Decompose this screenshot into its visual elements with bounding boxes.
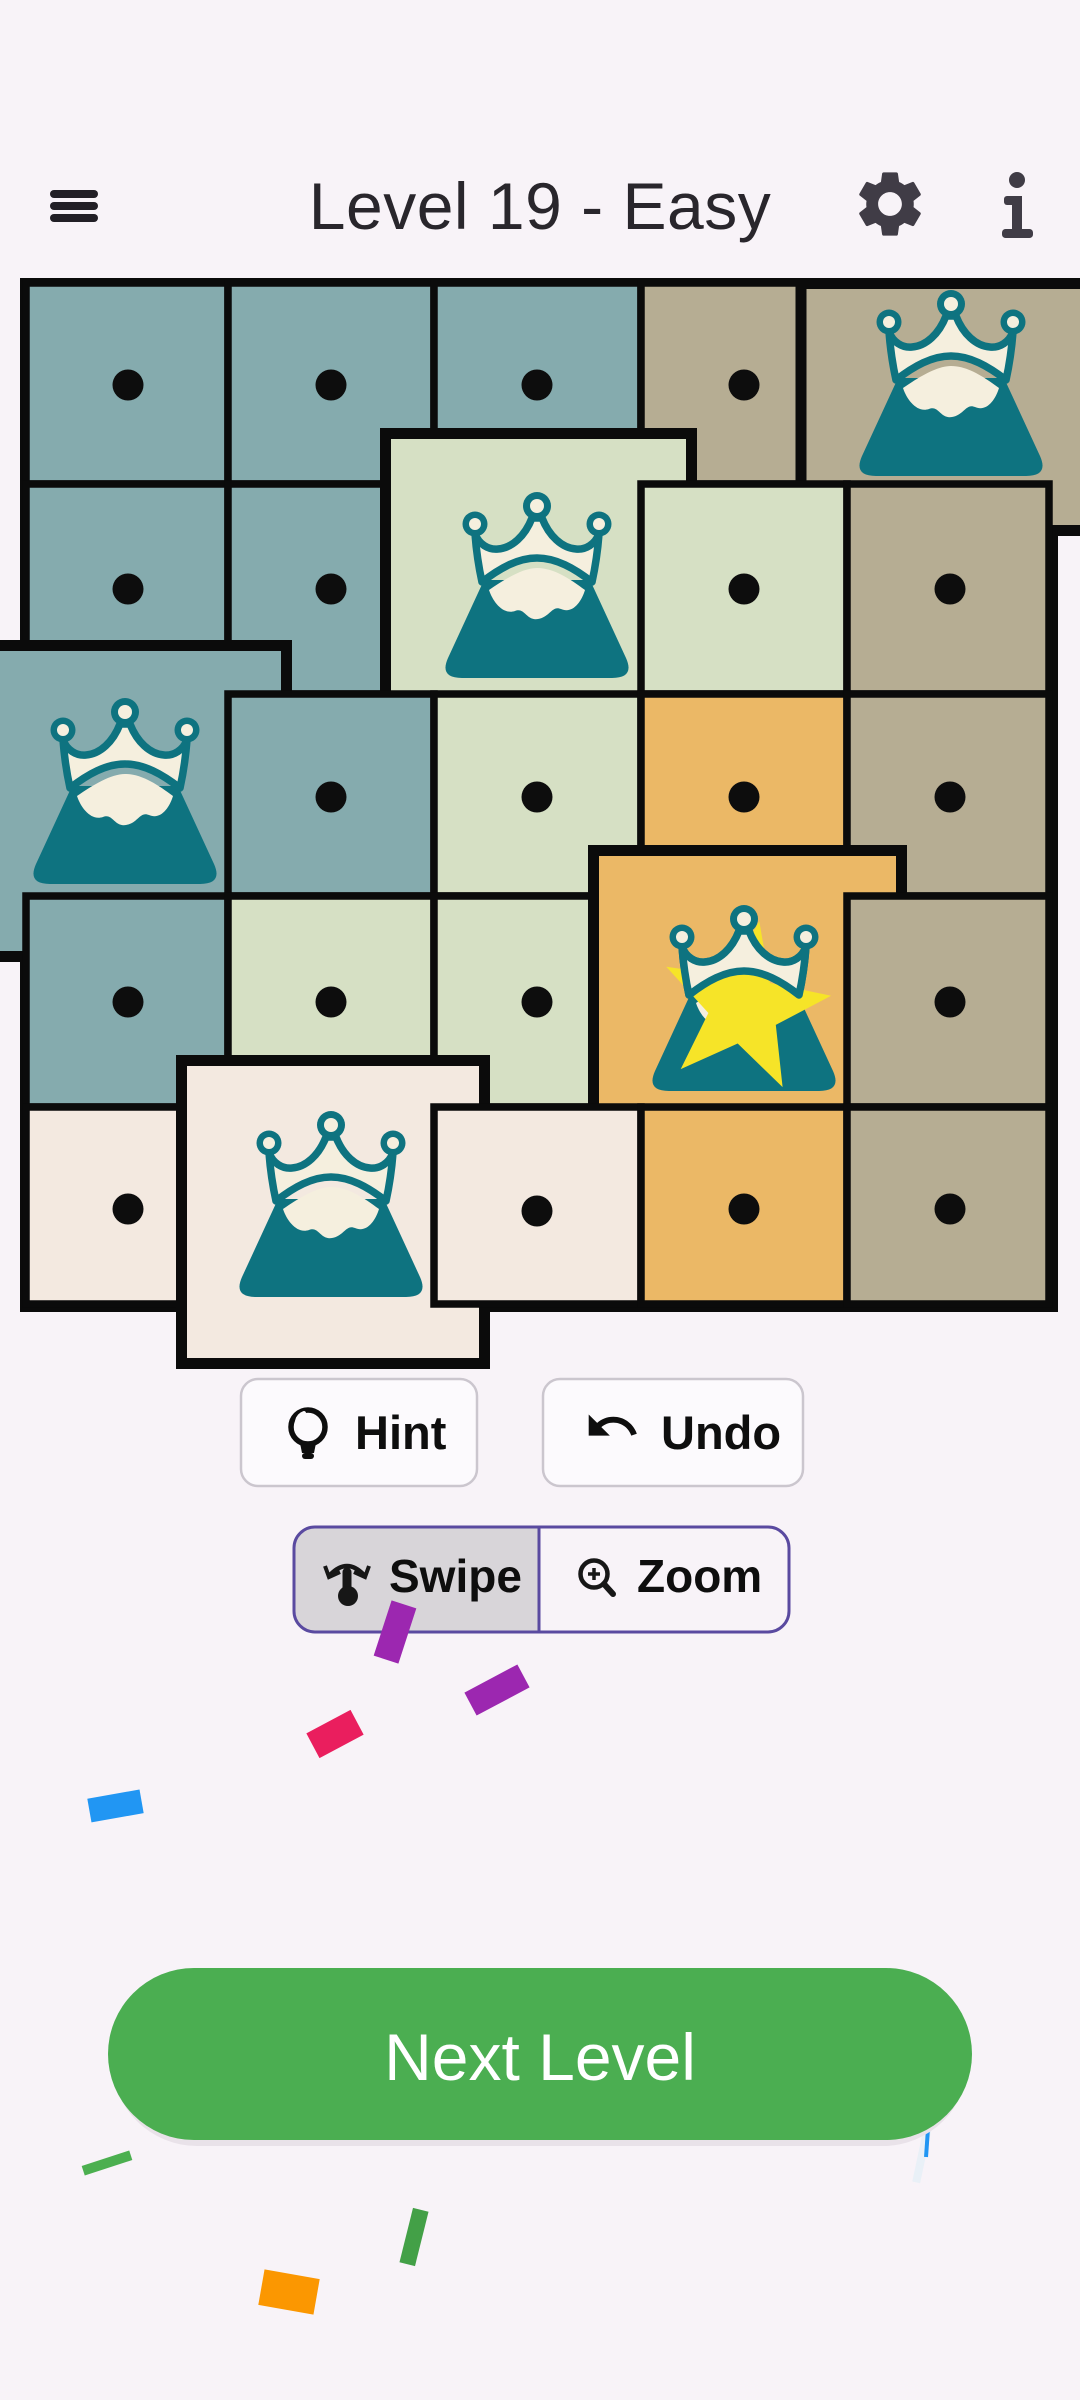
svg-text:Undo: Undo [661, 1406, 781, 1459]
svg-text:Swipe: Swipe [389, 1550, 522, 1602]
svg-text:Hint: Hint [355, 1406, 447, 1459]
svg-text:Next Level: Next Level [384, 2020, 696, 2094]
svg-text:Level 19 - Easy: Level 19 - Easy [309, 169, 771, 243]
svg-text:Zoom: Zoom [637, 1550, 762, 1602]
